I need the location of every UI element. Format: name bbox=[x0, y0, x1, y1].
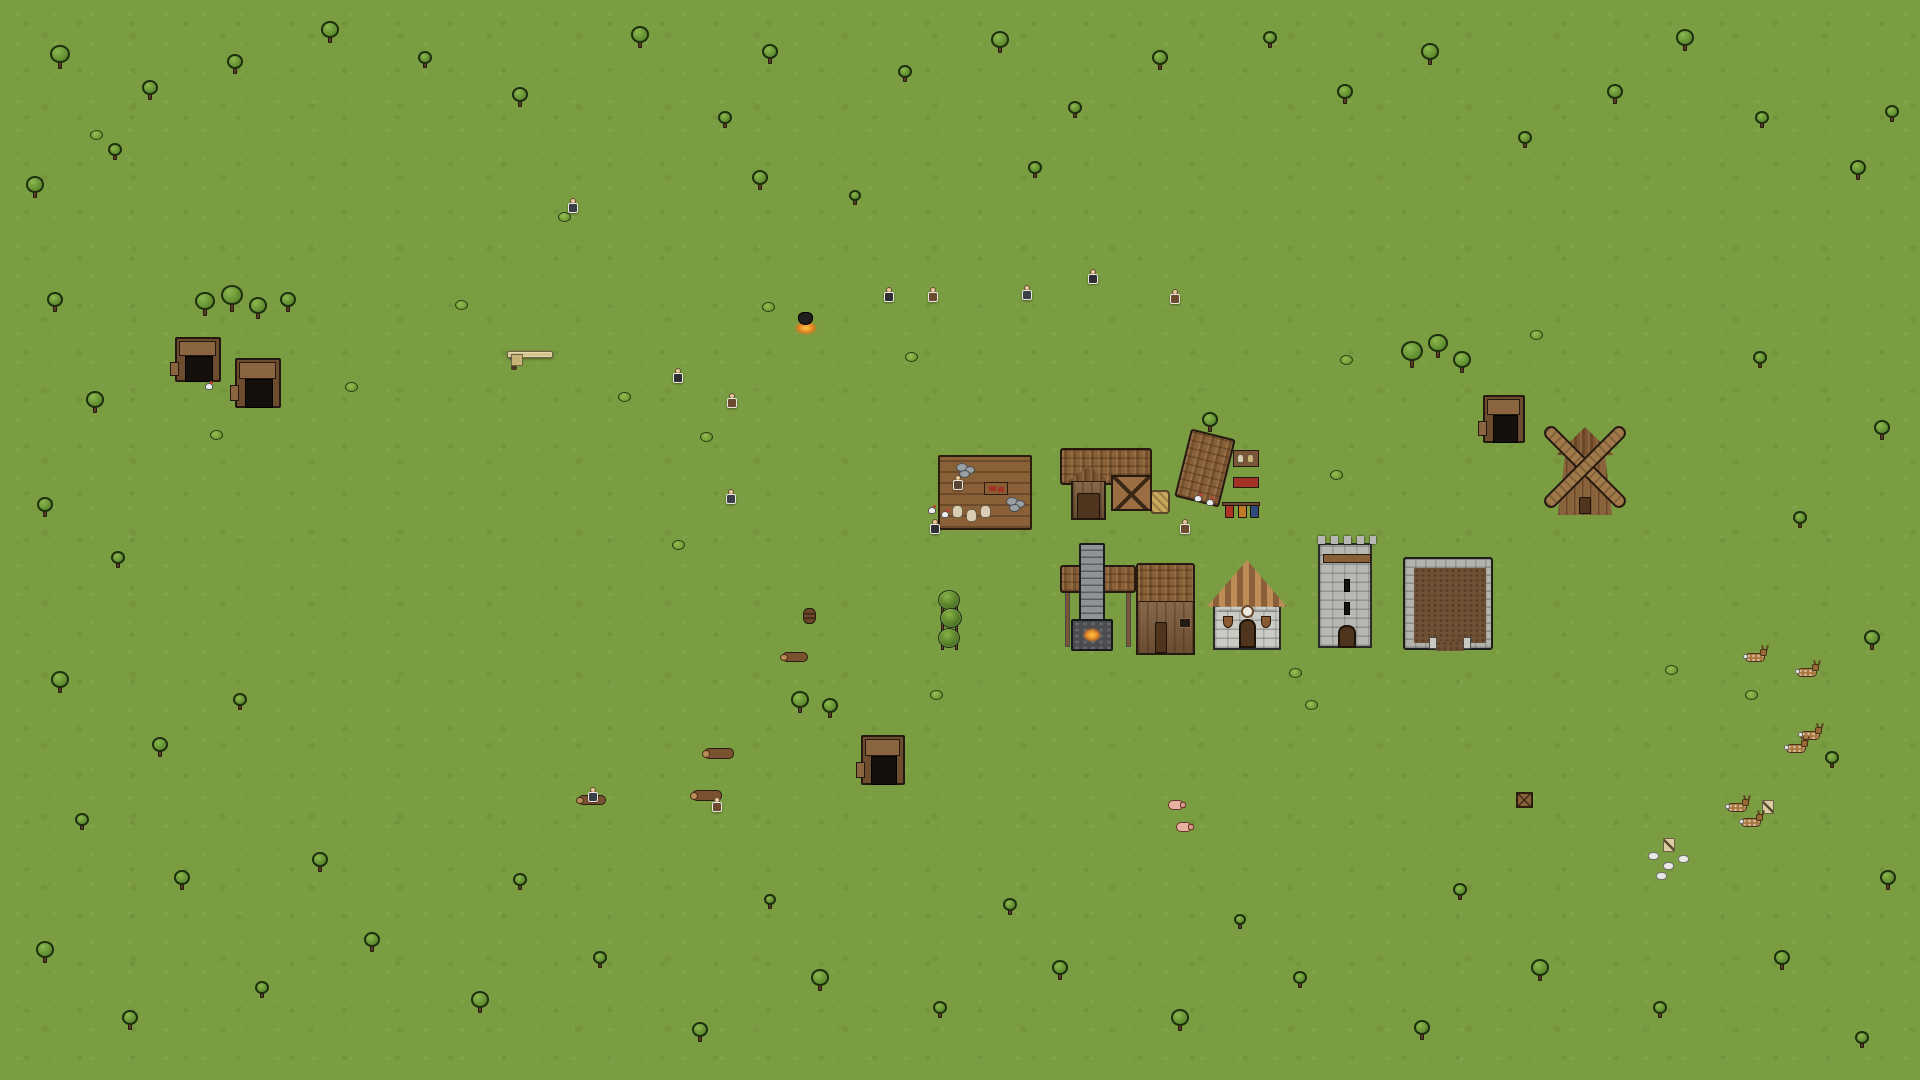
sack bbox=[966, 509, 977, 522]
hop-vines bbox=[937, 590, 963, 652]
door[interactable] bbox=[1155, 622, 1167, 653]
mining-order-sign[interactable] bbox=[1663, 838, 1675, 852]
log-end bbox=[702, 750, 710, 758]
tree[interactable] bbox=[321, 21, 339, 46]
villager[interactable] bbox=[712, 797, 722, 813]
chicken[interactable] bbox=[941, 510, 949, 518]
villager[interactable] bbox=[1180, 519, 1190, 535]
tree[interactable] bbox=[312, 852, 328, 875]
body bbox=[568, 203, 578, 213]
tree[interactable] bbox=[111, 551, 125, 572]
body bbox=[884, 292, 894, 302]
beam bbox=[179, 341, 216, 356]
stone-pile bbox=[1009, 504, 1020, 512]
tree[interactable] bbox=[1003, 898, 1017, 919]
canopy bbox=[37, 497, 53, 512]
tree[interactable] bbox=[822, 698, 838, 721]
bush bbox=[700, 432, 713, 442]
tree[interactable] bbox=[152, 737, 168, 760]
villager[interactable] bbox=[930, 519, 940, 535]
canopy bbox=[321, 21, 339, 38]
tree[interactable] bbox=[1793, 511, 1807, 532]
tree[interactable] bbox=[1755, 111, 1769, 132]
canopy bbox=[122, 1010, 138, 1025]
tree[interactable] bbox=[51, 671, 69, 696]
head bbox=[1756, 814, 1763, 821]
canopy bbox=[1880, 870, 1896, 885]
tail bbox=[1743, 654, 1748, 659]
opening bbox=[245, 379, 273, 408]
log-end bbox=[576, 797, 584, 804]
tree[interactable] bbox=[1421, 43, 1439, 68]
tree[interactable] bbox=[1880, 870, 1896, 893]
dye-bench bbox=[1233, 477, 1259, 488]
villager[interactable] bbox=[1170, 289, 1180, 305]
tree[interactable] bbox=[50, 45, 70, 72]
tail bbox=[1725, 804, 1730, 809]
canopy bbox=[1202, 412, 1218, 427]
canopy bbox=[418, 51, 432, 64]
tail bbox=[1784, 745, 1789, 750]
tree[interactable] bbox=[762, 44, 778, 67]
tree[interactable] bbox=[933, 1001, 947, 1022]
canopy bbox=[1028, 161, 1042, 174]
canopy bbox=[512, 87, 528, 102]
pig[interactable] bbox=[1176, 822, 1194, 833]
canopy bbox=[233, 693, 247, 706]
canopy bbox=[811, 969, 829, 986]
canopy bbox=[1864, 630, 1880, 645]
canopy bbox=[762, 44, 778, 59]
opening bbox=[871, 756, 897, 785]
bush bbox=[1340, 355, 1353, 365]
roof bbox=[1207, 560, 1287, 607]
tree[interactable] bbox=[1453, 883, 1467, 904]
canopy bbox=[75, 813, 89, 826]
hay-basket bbox=[1150, 490, 1170, 514]
tree[interactable] bbox=[1607, 84, 1623, 107]
canopy bbox=[1401, 341, 1423, 361]
villager[interactable] bbox=[953, 475, 963, 491]
support bbox=[230, 385, 239, 401]
barrel bbox=[803, 608, 816, 624]
courtyard-dirt bbox=[1414, 568, 1486, 643]
canopy bbox=[822, 698, 838, 713]
canopy bbox=[1855, 1031, 1869, 1044]
bush bbox=[455, 300, 468, 310]
post bbox=[1126, 589, 1131, 647]
body bbox=[1088, 274, 1098, 284]
tree[interactable] bbox=[249, 297, 267, 322]
body bbox=[712, 802, 722, 812]
villager[interactable] bbox=[588, 787, 598, 803]
canopy bbox=[991, 31, 1009, 48]
shelf bbox=[1233, 450, 1259, 467]
tree[interactable] bbox=[1453, 351, 1471, 376]
bush bbox=[210, 430, 223, 440]
canopy bbox=[249, 297, 267, 314]
canopy bbox=[1453, 883, 1467, 896]
chicken[interactable] bbox=[1194, 494, 1202, 502]
chicken[interactable] bbox=[205, 382, 213, 390]
tree[interactable] bbox=[36, 941, 54, 966]
deer[interactable] bbox=[1786, 740, 1810, 755]
stone-tower[interactable] bbox=[1318, 543, 1372, 648]
tree[interactable] bbox=[764, 894, 776, 913]
beam bbox=[239, 362, 276, 379]
tree[interactable] bbox=[37, 497, 53, 520]
smithy[interactable] bbox=[1060, 557, 1195, 655]
tree[interactable] bbox=[364, 932, 380, 955]
body bbox=[205, 383, 213, 390]
tree[interactable] bbox=[1855, 1031, 1869, 1052]
canopy bbox=[898, 65, 912, 78]
comb bbox=[1211, 497, 1214, 500]
support bbox=[856, 762, 865, 778]
tree[interactable] bbox=[142, 80, 158, 103]
windmill[interactable] bbox=[1545, 427, 1625, 515]
log-end bbox=[690, 792, 698, 800]
tree[interactable] bbox=[227, 54, 243, 77]
stone-chunk bbox=[1663, 862, 1674, 870]
canopy bbox=[1874, 420, 1890, 435]
bush bbox=[1530, 330, 1543, 340]
tree[interactable] bbox=[1401, 341, 1423, 370]
canopy bbox=[312, 852, 328, 867]
canopy bbox=[1885, 105, 1899, 118]
body bbox=[588, 792, 598, 802]
shield bbox=[1223, 616, 1233, 628]
tree[interactable] bbox=[75, 813, 89, 834]
body bbox=[1022, 290, 1032, 300]
villager[interactable] bbox=[568, 198, 578, 214]
tail bbox=[1739, 819, 1744, 824]
canopy bbox=[631, 26, 649, 43]
tree[interactable] bbox=[513, 873, 527, 894]
window bbox=[1179, 618, 1191, 628]
church[interactable] bbox=[1213, 560, 1281, 650]
tree[interactable] bbox=[86, 391, 104, 416]
head bbox=[1188, 824, 1194, 830]
tree[interactable] bbox=[108, 143, 122, 164]
body bbox=[941, 511, 949, 518]
canopy bbox=[1676, 29, 1694, 46]
canopy bbox=[47, 292, 63, 307]
bush bbox=[1305, 700, 1318, 710]
tree[interactable] bbox=[791, 691, 809, 716]
cauldron bbox=[798, 312, 813, 325]
tree[interactable] bbox=[1028, 161, 1042, 182]
canopy bbox=[152, 737, 168, 752]
mine-entrance[interactable] bbox=[175, 337, 221, 382]
canopy bbox=[36, 941, 54, 958]
bush bbox=[1330, 470, 1343, 480]
pig[interactable] bbox=[1168, 800, 1186, 811]
tree[interactable] bbox=[1337, 84, 1353, 107]
canopy bbox=[227, 54, 243, 69]
tree[interactable] bbox=[1263, 31, 1277, 52]
vine bbox=[938, 590, 960, 610]
close-button[interactable] bbox=[511, 354, 523, 366]
canopy bbox=[26, 176, 44, 193]
meat bbox=[989, 486, 996, 491]
walled-courtyard[interactable] bbox=[1403, 557, 1493, 650]
canopy bbox=[142, 80, 158, 95]
tree[interactable] bbox=[122, 1010, 138, 1033]
tree[interactable] bbox=[221, 285, 243, 314]
head bbox=[1812, 664, 1819, 671]
canopy bbox=[849, 190, 861, 201]
tree[interactable] bbox=[1885, 105, 1899, 126]
tree[interactable] bbox=[1068, 101, 1082, 122]
beam bbox=[865, 739, 900, 756]
stone-chunk bbox=[1678, 855, 1689, 863]
log-pile bbox=[704, 748, 734, 759]
canopy bbox=[1453, 351, 1471, 368]
vine bbox=[938, 628, 960, 648]
support bbox=[1478, 421, 1487, 436]
tree[interactable] bbox=[195, 292, 215, 319]
villager[interactable] bbox=[1088, 269, 1098, 285]
chicken[interactable] bbox=[928, 506, 936, 514]
post bbox=[1065, 589, 1070, 647]
canopy bbox=[692, 1022, 708, 1037]
tree[interactable] bbox=[1293, 971, 1307, 992]
bush bbox=[905, 352, 918, 362]
canopy bbox=[718, 111, 732, 124]
tree[interactable] bbox=[47, 292, 63, 315]
tree[interactable] bbox=[1234, 914, 1246, 933]
beam bbox=[1487, 399, 1520, 415]
villager[interactable] bbox=[727, 393, 737, 409]
butcher-table bbox=[984, 482, 1008, 495]
tree[interactable] bbox=[471, 991, 489, 1016]
tree[interactable] bbox=[718, 111, 732, 132]
canopy bbox=[593, 951, 607, 964]
head bbox=[1742, 799, 1749, 806]
mine-entrance[interactable] bbox=[235, 358, 281, 408]
tree[interactable] bbox=[1874, 420, 1890, 443]
support bbox=[170, 362, 179, 376]
canopy bbox=[764, 894, 776, 905]
body bbox=[1170, 294, 1180, 304]
tree[interactable] bbox=[1825, 751, 1839, 772]
canopy bbox=[1003, 898, 1017, 911]
canopy bbox=[1850, 160, 1866, 175]
tree[interactable] bbox=[631, 26, 649, 51]
gate-gap bbox=[1436, 641, 1464, 651]
door[interactable] bbox=[1239, 619, 1256, 648]
canopy bbox=[1531, 959, 1549, 976]
villager[interactable] bbox=[726, 489, 736, 505]
building-info-panel bbox=[507, 351, 553, 358]
deer[interactable] bbox=[1741, 814, 1765, 829]
door[interactable] bbox=[1579, 497, 1591, 514]
goods bbox=[1237, 454, 1244, 463]
tree[interactable] bbox=[1774, 950, 1790, 973]
canopy bbox=[1755, 111, 1769, 124]
arrow-slit bbox=[1344, 579, 1350, 592]
canopy bbox=[471, 991, 489, 1008]
head bbox=[1760, 649, 1767, 656]
canopy bbox=[1152, 50, 1168, 65]
tail bbox=[1795, 669, 1800, 674]
rose-window bbox=[1241, 605, 1254, 618]
canopy bbox=[111, 551, 125, 564]
platform bbox=[1323, 554, 1371, 563]
tree[interactable] bbox=[811, 969, 829, 994]
tree[interactable] bbox=[898, 65, 912, 86]
tree[interactable] bbox=[512, 87, 528, 110]
canopy bbox=[195, 292, 215, 310]
tree[interactable] bbox=[849, 190, 861, 209]
comb bbox=[210, 381, 213, 384]
bush bbox=[762, 302, 775, 312]
canopy bbox=[513, 873, 527, 886]
canopy bbox=[1428, 334, 1448, 352]
canopy bbox=[364, 932, 380, 947]
villager[interactable] bbox=[1022, 285, 1032, 301]
body bbox=[928, 292, 938, 302]
tree[interactable] bbox=[1850, 160, 1866, 183]
body bbox=[1180, 524, 1190, 534]
deer[interactable] bbox=[1745, 649, 1769, 664]
canopy bbox=[221, 285, 243, 305]
canopy bbox=[1774, 950, 1790, 965]
door[interactable] bbox=[1338, 625, 1356, 648]
body bbox=[1206, 499, 1214, 506]
villager[interactable] bbox=[884, 287, 894, 303]
cloth bbox=[1250, 505, 1259, 518]
canopy bbox=[174, 870, 190, 885]
comb bbox=[946, 509, 949, 512]
canopy bbox=[108, 143, 122, 156]
tree[interactable] bbox=[1052, 960, 1068, 983]
chicken[interactable] bbox=[1206, 498, 1214, 506]
tree[interactable] bbox=[1414, 1020, 1430, 1043]
forge-chimney bbox=[1079, 543, 1105, 623]
stone-chunk bbox=[1656, 872, 1667, 880]
deer[interactable] bbox=[1727, 799, 1751, 814]
bush bbox=[672, 540, 685, 550]
deer[interactable] bbox=[1797, 664, 1821, 679]
barn-door[interactable] bbox=[1077, 493, 1099, 519]
canopy bbox=[1653, 1001, 1667, 1014]
vine bbox=[940, 608, 962, 628]
tree[interactable] bbox=[1428, 334, 1448, 361]
canopy bbox=[1052, 960, 1068, 975]
tree[interactable] bbox=[1531, 959, 1549, 984]
villager[interactable] bbox=[928, 287, 938, 303]
gate-post bbox=[1463, 637, 1471, 649]
canopy bbox=[752, 170, 768, 185]
body bbox=[726, 494, 736, 504]
canopy bbox=[50, 45, 70, 63]
canopy bbox=[1263, 31, 1277, 44]
tree[interactable] bbox=[26, 176, 44, 201]
tree[interactable] bbox=[593, 951, 607, 972]
cloth bbox=[1225, 505, 1234, 518]
comb bbox=[933, 505, 936, 508]
tree[interactable] bbox=[692, 1022, 708, 1045]
log-end bbox=[780, 654, 788, 661]
tree[interactable] bbox=[255, 981, 269, 1002]
canopy bbox=[255, 981, 269, 994]
crenellation bbox=[1318, 536, 1376, 544]
goods bbox=[1247, 454, 1254, 463]
tree[interactable] bbox=[1171, 1009, 1189, 1034]
bush bbox=[90, 130, 103, 140]
body bbox=[928, 507, 936, 514]
cloth bbox=[1238, 505, 1247, 518]
opening bbox=[185, 356, 213, 382]
opening bbox=[1493, 415, 1518, 443]
house-roof bbox=[1136, 563, 1195, 605]
mine-entrance[interactable] bbox=[1483, 395, 1525, 443]
tree[interactable] bbox=[1202, 412, 1218, 435]
head bbox=[1801, 740, 1808, 747]
bush bbox=[345, 382, 358, 392]
tree[interactable] bbox=[1864, 630, 1880, 653]
tree[interactable] bbox=[752, 170, 768, 193]
tree[interactable] bbox=[280, 292, 296, 315]
open-bay bbox=[1111, 475, 1152, 511]
canopy bbox=[1171, 1009, 1189, 1026]
canopy bbox=[51, 671, 69, 688]
tree[interactable] bbox=[1518, 131, 1532, 152]
villager[interactable] bbox=[673, 368, 683, 384]
canopy bbox=[280, 292, 296, 307]
sack bbox=[952, 505, 963, 518]
tree[interactable] bbox=[1653, 1001, 1667, 1022]
canopy bbox=[1414, 1020, 1430, 1035]
canopy bbox=[791, 691, 809, 708]
canopy bbox=[933, 1001, 947, 1014]
bush bbox=[930, 690, 943, 700]
bush bbox=[618, 392, 631, 402]
canopy bbox=[1753, 351, 1767, 364]
gate-post bbox=[1429, 637, 1437, 649]
bush bbox=[1665, 665, 1678, 675]
canopy bbox=[1337, 84, 1353, 99]
stone-chunk bbox=[1648, 852, 1659, 860]
canopy bbox=[1793, 511, 1807, 524]
canopy bbox=[86, 391, 104, 408]
tree[interactable] bbox=[1152, 50, 1168, 73]
barn[interactable] bbox=[1060, 448, 1152, 520]
canopy bbox=[1825, 751, 1839, 764]
mine-entrance[interactable] bbox=[861, 735, 905, 785]
weaver-roof[interactable] bbox=[1174, 428, 1236, 507]
bush bbox=[1289, 668, 1302, 678]
fire bbox=[1084, 629, 1100, 641]
sack bbox=[980, 505, 991, 518]
tree[interactable] bbox=[174, 870, 190, 893]
canopy bbox=[1293, 971, 1307, 984]
arrow-slit bbox=[1344, 602, 1350, 615]
tree[interactable] bbox=[233, 693, 247, 714]
body bbox=[673, 373, 683, 383]
tree[interactable] bbox=[991, 31, 1009, 56]
meat bbox=[998, 487, 1004, 492]
tree[interactable] bbox=[418, 51, 432, 72]
head bbox=[1815, 727, 1822, 734]
canopy bbox=[1607, 84, 1623, 99]
tree[interactable] bbox=[1676, 29, 1694, 54]
tree[interactable] bbox=[1753, 351, 1767, 372]
crate bbox=[1516, 792, 1533, 808]
body bbox=[953, 480, 963, 490]
